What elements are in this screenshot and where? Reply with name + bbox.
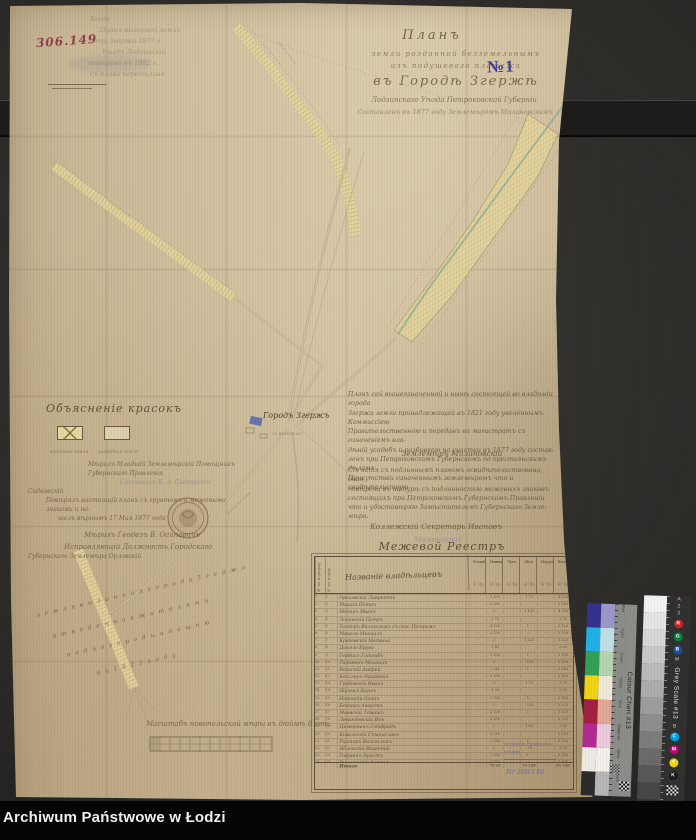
col-header-no2: № по плану [325, 557, 337, 593]
color-patch [583, 699, 598, 723]
pencil-note-line: гор. Згержа 1877 г. [94, 36, 240, 47]
table-row: 7 7 Краковскій Матвѣй · · 2 · · · 1 225 … [315, 637, 573, 644]
col-header-group: Лѣсам · пр [520, 557, 537, 593]
pastel-patch [597, 700, 612, 724]
pencil-dash [52, 88, 92, 89]
col-header-group: Пашним · пр [486, 557, 503, 593]
map-subtitle-4: Составленъ въ 1877 году Землемѣромъ Мила… [344, 108, 566, 116]
owner-name: Кесслеръ Фридрихъ [337, 674, 414, 679]
col-header-group: Всегом · пр [554, 557, 571, 593]
owner-name: Гербихъ Готлибъ [337, 653, 414, 658]
table-row: 11 11 Вольскій Андрей · · 2 240 · · 1 · … [315, 666, 573, 673]
certification-line: Згержа земли принадлежащей въ 1821 году … [348, 409, 564, 428]
grey-step [640, 697, 664, 715]
rgb-dot: R [674, 619, 683, 628]
pastel-patch [600, 628, 615, 652]
owner-name: Дысель Бруно [337, 645, 414, 650]
pastel-patch [595, 772, 610, 796]
table-row: 4 4 Лозинскій Петръ · · 2 75 · · · · · ·… [315, 616, 573, 623]
owner-name: Цимерманъ Готфридъ [337, 724, 414, 729]
col-header-names: Названіе владѣльцевъ [336, 555, 469, 596]
table-row: 3 3 Мейеръ Иванъ · · 3 · · · 1 150 · · 4… [315, 608, 573, 615]
certification-line: мѣра. [348, 512, 560, 521]
owner-name: Мацкій Петръ [337, 602, 414, 607]
legend-caption-2: усадебная земля [98, 449, 138, 454]
pencil-note-line: Планъ выгонной земли [100, 25, 240, 36]
grey-step [641, 680, 665, 698]
totals-label: Итого [337, 763, 414, 769]
city-sublabel: съ выгонами [272, 431, 302, 436]
map-subtitle-1: земли розданной безземельнымъ [352, 50, 560, 58]
certification-line: что и удостовѣряю Замѣстителемъ Губернск… [348, 503, 560, 512]
city-label: Городъ Згержъ [263, 411, 329, 420]
certification-line: состоящихъ при Петроковскомъ Губернскомъ… [348, 494, 560, 503]
certification-paragraph-2: Сія копія съ подлиннымъ планомъ освидѣте… [348, 466, 560, 522]
rgb-dot: B [673, 645, 682, 654]
owner-name: Ореховскій Лаврентій [337, 595, 414, 600]
pencil-note-line: Уѣздъ Лодзинскій [102, 47, 240, 58]
owner-name: Лозинскій Петръ [337, 617, 414, 622]
parcel-strip-northeast [388, 102, 566, 350]
register-title: Межевой Реестръ [352, 540, 532, 553]
legend-note-line: Губернскаго Землемѣра Орловскій [28, 552, 243, 561]
grey-step [642, 646, 666, 664]
table-row: 18 18 Левандовскій Янъ · · 3 150 · · · ·… [315, 716, 573, 723]
owner-name: Рихтеръ Вильгельмъ [337, 739, 414, 744]
legend-heading: Объясненіе красокъ [46, 402, 226, 415]
grey-step [637, 782, 661, 800]
ruler-mark: M [675, 656, 679, 663]
colour-chart-label: Colour Chart #13 [624, 672, 633, 730]
owner-name: Вольскій Андрей [337, 667, 414, 672]
grey-step [642, 629, 666, 647]
table-row: 13 13 Грабовскій Иванъ · · 2 · · · 1 75 … [315, 680, 573, 687]
calibration-checker [666, 785, 678, 795]
pastel-patch [601, 604, 616, 628]
owner-name: Шульцъ Карлъ [337, 688, 414, 693]
owner-name: Ковальскій Станиславъ [337, 732, 414, 737]
table-row: 6 6 Мицель Михаилъ · · 3 150 · · · · · ·… [315, 630, 573, 637]
legend-note-line: Мѣрилъ Младшій Землемѣрскій Помощникъ Гу… [88, 460, 243, 478]
owner-name: Теодоръ Вильгельмъ съ сын. Петромъ [337, 624, 414, 629]
table-row: 9 9 Гербихъ Готлибъ · · 2 190 · · 1 · · … [315, 652, 573, 659]
table-row: 5 5 Теодоръ Вильгельмъ съ сын. Петромъ ·… [315, 623, 573, 630]
cmyk-dot: C [670, 732, 679, 741]
owner-name: Левандовскій Янъ [337, 717, 414, 722]
certification-line: Правительственною и переданъ въ магистра… [348, 427, 564, 446]
owner-name: Вишневскій Антонъ [337, 760, 414, 762]
grey-step [641, 663, 665, 681]
grey-step [639, 714, 663, 732]
color-patch [584, 675, 599, 699]
colour-name: Red [614, 700, 623, 724]
table-row: 17 17 Маевскій Томашъ · · 2 120 · · 1 · … [315, 709, 573, 716]
legend-note-line: шелъ вѣрнымъ 17 Мая 1877 года [58, 514, 243, 523]
colour-name: Blue [618, 604, 627, 628]
cmyk-dot: K [668, 771, 677, 780]
official-signature: Коллежскій Секретарь Ивановъ [370, 522, 502, 531]
table-row: 15 15 Новицкій Осипъ · · 2 150 · · 1 · ·… [315, 695, 573, 702]
calibration-checker [619, 781, 629, 790]
grey-step [638, 765, 662, 783]
archive-ink-stamp: Archiwum Państwowe w Łodzi [504, 742, 568, 760]
rgb-dot: G [673, 632, 682, 641]
col-header-group: Неудоб.м · пр [537, 557, 554, 593]
colour-name: Green [616, 652, 625, 676]
calibration-checker [610, 764, 619, 772]
register-rows: 1 1 Ореховскій Лаврентій · · 3 150 · · 1… [315, 594, 573, 762]
parcel-strip-northwest [236, 20, 356, 236]
pencil-note-line: повѣрено въ 1882 г. [88, 58, 240, 69]
stamp-underline [504, 759, 556, 760]
certification-line: Планъ сей вышеозначенной и нынѣ состояще… [348, 390, 564, 409]
cmyk-dot: Y [669, 758, 678, 767]
col-header-no1: № по порядку [315, 557, 325, 593]
purple-pencil-mark [583, 52, 588, 68]
color-patch [587, 603, 602, 627]
ruler-mark: B [673, 723, 677, 730]
table-row: 20 20 Ковальскій Станиславъ · · 3 210 · … [315, 731, 573, 738]
owner-name: Новицкій Осипъ [337, 696, 414, 701]
col-header-group: Усадьбым · пр [469, 557, 486, 593]
owner-name: Грабовскій Иванъ [337, 681, 414, 686]
archive-label: Archiwum Państwowe w Łodzi [3, 809, 226, 826]
pencil-note-line: Копія [90, 14, 240, 25]
legend-caption-1: выгонная земля [50, 449, 88, 454]
pastel-patch [599, 652, 614, 676]
table-row: 1 1 Ореховскій Лаврентій · · 3 150 · · 1… [315, 594, 573, 601]
owner-name: Краковскій Матвѣй [337, 638, 414, 643]
owner-name: Мицель Михаилъ [337, 631, 414, 636]
ruler-mark: 3 [677, 610, 680, 617]
col-header-group: Лугам · пр [503, 557, 520, 593]
colour-name: Magenta [613, 724, 622, 748]
table-row: 19 19 Цимерманъ Готфридъ · · 2 · · · 1 6… [315, 723, 573, 730]
pastel-patch [596, 724, 611, 748]
certification-line: повѣрена въ натурѣ съ подлинностью межев… [348, 485, 560, 494]
pastel-patch [598, 676, 613, 700]
owner-name: Мейеръ Иванъ [337, 609, 414, 614]
scale-bar [150, 737, 272, 751]
colour-name: Cyan [617, 628, 626, 652]
legend-note-line: Садковскій [28, 487, 243, 496]
color-patch [585, 651, 600, 675]
certification-line: Сія копія съ подлиннымъ планомъ освидѣте… [348, 466, 560, 485]
legend-swatch-hatched [57, 426, 83, 440]
pencil-note-line: съ плана передѣлано [90, 69, 240, 80]
legend-note-line: Составилъ К. А. Садковскій [120, 478, 243, 487]
owner-name: Яблонскій Викентій [337, 746, 414, 751]
color-patch [582, 723, 597, 747]
table-row: 2 2 Мацкій Петръ · · 2 280 · · · · · · 2… [315, 601, 573, 608]
legend-note-line: Повѣрялъ настоящій планъ съ грунтомъ и м… [46, 496, 243, 514]
map-subtitle-2: изъ подушеваго платежа [352, 62, 560, 70]
surveyor-signature: Землемѣръ Милановскій [372, 449, 532, 458]
table-row: 10 10 Тильманъ Михаилъ · · 3 · · · · 150… [315, 659, 573, 666]
pencil-notes: КопіяПланъ выгонной землигор. Згержа 187… [90, 14, 240, 80]
table-row: 16 16 Беккеръ Августъ · · 3 · · · · 225 … [315, 702, 573, 709]
register-header: № по порядку № по плану Названіе владѣль… [315, 557, 573, 594]
table-row: 8 8 Дысель Бруно · · 3 60 · · · · · · 3 … [315, 644, 573, 651]
pencil-dash [48, 84, 106, 85]
color-patch [582, 747, 597, 771]
color-patch [581, 771, 596, 795]
grey-step [643, 612, 667, 630]
archival-scan: 306.149 №1 Планъ земли розданной безземе… [0, 0, 696, 840]
archive-bar: Archiwum Państwowe w Łodzi [0, 801, 696, 840]
grey-step [639, 731, 663, 749]
archive-ink-note: Nr 306/149 [506, 768, 544, 776]
table-row: 12 12 Кесслеръ Фридрихъ · · 3 150 · · · … [315, 673, 573, 680]
owner-name: Тильманъ Михаилъ [337, 660, 414, 665]
legend-notes: Мѣрилъ Младшій Землемѣрскій Помощникъ Гу… [28, 460, 243, 561]
colour-name: Yellow [615, 676, 624, 700]
color-patch [586, 627, 601, 651]
grey-scale-label: Grey Scale #13 [671, 667, 680, 719]
map-subtitle-3: Лодзинскаго Уѣзда Петроковской Губерніи [336, 96, 572, 104]
table-row: 14 14 Шульцъ Карлъ · · 3 90 · · · · · · … [315, 687, 573, 694]
map-title: Планъ [392, 28, 472, 43]
owner-name: Маевскій Томашъ [337, 710, 414, 715]
grey-step [638, 748, 662, 766]
owner-name: Беккеръ Августъ [337, 703, 414, 708]
cmyk-dot: M [669, 745, 678, 754]
map-title-city: въ Городѣ Згержѣ [358, 74, 554, 89]
grey-step [644, 595, 668, 613]
legend-note-line: Исправляющій Должность Городскаго [64, 543, 243, 552]
pastel-patch [595, 748, 610, 772]
colour-chart-target: BlueCyanGreenYellowRedMagentaWhiteBlack … [581, 603, 638, 797]
owner-name: Гофманъ Эрнстъ [337, 753, 414, 758]
legend-note-line: Мѣрилъ Геодезъ В. Осиповичъ [84, 531, 243, 540]
legend-swatch-plain [104, 426, 130, 440]
